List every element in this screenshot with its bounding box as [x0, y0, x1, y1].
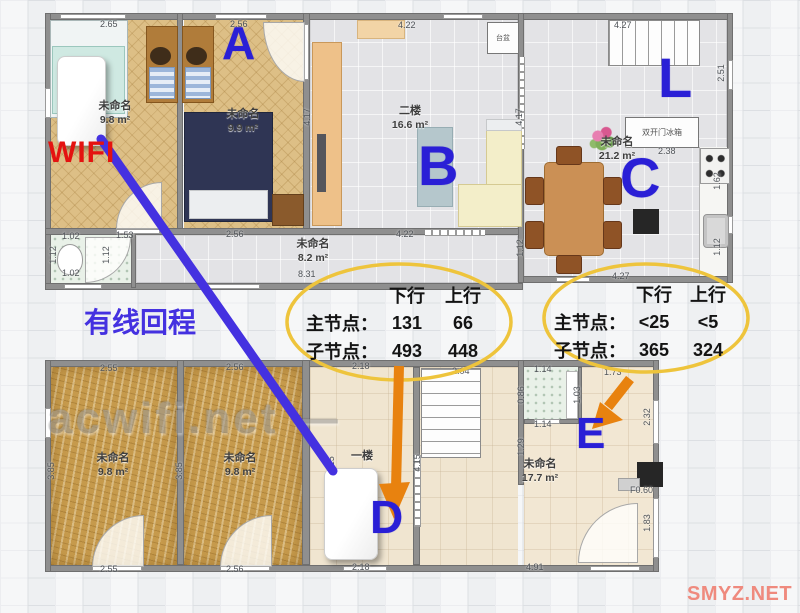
speed-table-wireless: 下行 上行 主节点： <25 <5 子节点： 365 324 [540, 280, 734, 364]
room-area: 9.8 m² [205, 466, 275, 479]
lounge-cushion [150, 47, 171, 65]
room-name: 一楼 [351, 450, 373, 462]
measurement: 2.55 [100, 363, 118, 373]
bed-pillows [189, 190, 268, 219]
measurement: 2.56 [226, 362, 244, 372]
room-label: 一楼 [332, 450, 392, 464]
measurement: 4.91 [526, 562, 544, 572]
room-label: 未命名9.9 m² [208, 108, 278, 135]
room-label: 未命名9.8 m² [205, 452, 275, 479]
window-opening [204, 284, 260, 289]
main-node-label: 主节点： [296, 310, 378, 336]
node-letter-e: E [576, 412, 605, 456]
room-area: 17.7 m² [505, 472, 575, 485]
downlink-header: 下行 [378, 282, 436, 308]
measurement: 4.17 [514, 108, 524, 126]
watermark-acwifi: acwifi.net — [48, 394, 341, 444]
room-area: 9.9 m² [208, 122, 278, 135]
dining-chair [556, 146, 582, 165]
dashed-opening [425, 229, 485, 236]
measurement: 2.56 [226, 229, 244, 239]
room-label: 二楼16.6 m² [375, 105, 445, 132]
room-name: 未命名 [224, 452, 257, 464]
room-name: 未命名 [97, 452, 130, 464]
measurement: 3.85 [174, 462, 184, 480]
measurement: 1.12 [101, 246, 111, 264]
child-node-row: 子节点： 493 448 [296, 337, 490, 365]
measurement: 2.51 [716, 64, 726, 82]
watermark-smyz: SMYZ.NET [687, 583, 792, 606]
room-label: 未命名9.8 m² [80, 100, 150, 127]
node-letter-d: D [370, 494, 403, 540]
room-name: 未命名 [524, 458, 557, 470]
room-label: 未命名17.7 m² [505, 458, 575, 485]
measurement: 1.73 [604, 367, 622, 377]
room-label: 未命名8.2 m² [278, 238, 348, 265]
measurement: 1.53 [116, 230, 134, 240]
room-name: 未命名 [297, 238, 330, 250]
speed-table-header: 下行 上行 [540, 280, 734, 308]
child-node-up: 448 [436, 341, 490, 362]
child-node-label: 子节点： [296, 338, 378, 364]
lounge-mat [185, 67, 211, 99]
stairs-lower [421, 368, 481, 458]
measurement: 4.17 [302, 108, 312, 126]
measurement: 1.12 [48, 246, 58, 264]
child-node-label: 子节点： [540, 337, 626, 363]
basin-box: 台盆 [487, 22, 519, 54]
lounge-mat [149, 67, 175, 99]
measurement: 1.83 [642, 514, 652, 532]
measurement: 0.86 [516, 386, 526, 404]
wired-backhaul-label: 有线回程 [84, 301, 196, 341]
main-node-down: <25 [626, 312, 682, 333]
child-node-down: 493 [378, 341, 436, 362]
measurement: 2.18 [352, 562, 370, 572]
measurement: 4.15 [412, 454, 422, 472]
downlink-header: 下行 [626, 281, 682, 307]
window-opening [653, 498, 659, 558]
window-opening [653, 400, 659, 444]
dining-table [544, 162, 604, 256]
measurement: 4.27 [614, 20, 632, 30]
main-node-row: 主节点： 131 66 [296, 309, 490, 337]
room-name: 二楼 [399, 105, 421, 117]
main-node-up: <5 [682, 312, 734, 333]
wifi-label: WIFI [48, 136, 115, 170]
measurement: 4.22 [396, 229, 414, 239]
room-area: 9.8 m² [80, 114, 150, 127]
main-node-label: 主节点： [540, 309, 626, 335]
speed-table-wired: 下行 上行 主节点： 131 66 子节点： 493 448 [296, 281, 490, 365]
dining-chair [556, 255, 582, 274]
node-letter-l: L [658, 50, 692, 106]
measurement: 2.38 [658, 146, 676, 156]
measurement: 2.56 [226, 564, 244, 574]
node-letter-a: A [222, 20, 255, 66]
wall [302, 360, 310, 565]
room-area: 8.2 m² [278, 252, 348, 265]
measurement: F0.60 [630, 485, 653, 495]
uplink-header: 上行 [682, 281, 734, 307]
main-node-down: 131 [378, 313, 436, 334]
window-opening [64, 284, 102, 289]
measurement: 2.04 [452, 366, 470, 376]
dining-chair [603, 221, 622, 249]
measurement: 1.29 [516, 438, 526, 456]
room-area: 9.8 m² [78, 466, 148, 479]
monitor [317, 134, 326, 192]
lounge-cushion [186, 47, 207, 65]
window-opening [590, 566, 640, 571]
window-opening [728, 60, 733, 90]
main-node-row: 主节点： <25 <5 [540, 308, 734, 336]
measurement: 2.55 [100, 564, 118, 574]
tv-unit [633, 209, 659, 234]
main-node-up: 66 [436, 313, 490, 334]
measurement: 3.85 [46, 462, 56, 480]
measurement: 1.02 [62, 231, 80, 241]
measurement: 1.03 [572, 386, 582, 404]
speed-table-header: 下行 上行 [296, 281, 490, 309]
measurement: 1.14 [534, 364, 552, 374]
sofa-chaise [458, 184, 522, 227]
window-opening [443, 14, 483, 19]
tv-unit [637, 462, 663, 487]
nightstand [272, 194, 304, 226]
measurement: 8.31 [298, 269, 316, 279]
node-letter-c: C [620, 150, 660, 206]
dining-chair [525, 177, 544, 205]
room-name: 未命名 [99, 100, 132, 112]
measurement: 1.12 [712, 238, 722, 256]
measurement: 1.62 [712, 172, 722, 190]
measurement: 1.14 [534, 419, 552, 429]
measurement: 4.22 [398, 20, 416, 30]
measurement: 2.32 [642, 408, 652, 426]
measurement: 2.65 [100, 19, 118, 29]
child-node-down: 365 [626, 340, 682, 361]
wall [45, 13, 733, 20]
dining-chair [525, 221, 544, 249]
uplink-header: 上行 [436, 282, 490, 308]
room-name: 未命名 [227, 108, 260, 120]
measurement: 1.02 [62, 268, 80, 278]
child-node-up: 324 [682, 340, 734, 361]
floorplan-image: 台盆双开门冰箱2.652.564.224.274.174.172.512.381… [0, 0, 800, 613]
child-node-row: 子节点： 365 324 [540, 336, 734, 364]
room-label: 未命名9.8 m² [78, 452, 148, 479]
room-area: 16.6 m² [375, 119, 445, 132]
node-letter-b: B [418, 138, 458, 194]
measurement: 1.12 [515, 239, 525, 257]
